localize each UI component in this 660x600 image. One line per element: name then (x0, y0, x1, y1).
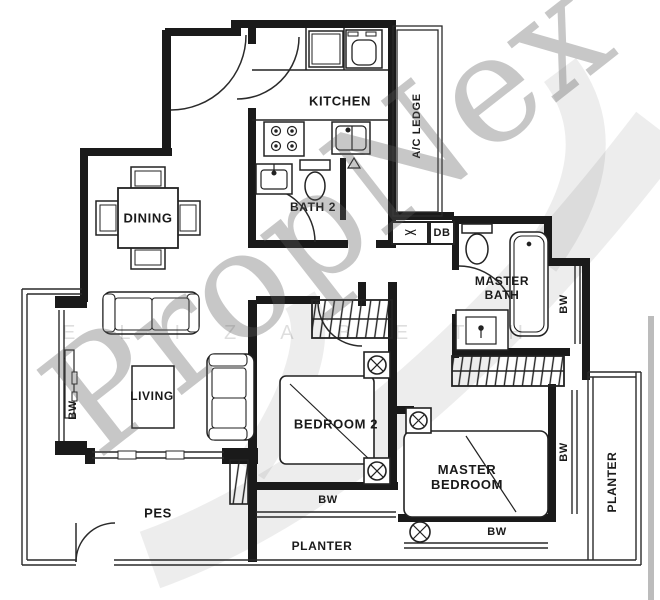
bw-label-master-right: BW (558, 442, 570, 462)
room-label-pes: PES (144, 506, 172, 521)
stove-hob (264, 122, 304, 156)
bw-label-master-bottom: BW (487, 526, 507, 538)
bath2-toilet (300, 160, 330, 200)
room-label-living: LIVING (130, 389, 174, 403)
bw-label-master-bath: BW (558, 294, 570, 314)
aircon-symbol-bedroom2-top (364, 352, 390, 378)
planter-label-right: PLANTER (605, 452, 619, 513)
kitchen-door-arc (237, 37, 299, 99)
bath2-basin (256, 164, 292, 194)
room-label-master-bedroom: MASTER BEDROOM (421, 463, 513, 493)
scan-artifact-bar (648, 316, 654, 600)
db-label: DB (433, 227, 450, 239)
room-label-ac-ledge: A/C LEDGE (411, 93, 423, 158)
fridge (309, 31, 343, 67)
planter-label-bottom: PLANTER (292, 539, 353, 553)
aircon-symbol-bedroom2-bottom (364, 458, 390, 484)
sofa-top (103, 292, 199, 334)
aircon-symbol-master (406, 408, 431, 433)
bowtie-symbol: >< (405, 227, 416, 239)
floor-plan: ELIZABETH KITCHEN DINING BATH 2 A/C LEDG… (0, 0, 660, 600)
washing-machine (346, 30, 382, 68)
living-furniture (65, 292, 254, 440)
room-label-bedroom2: BEDROOM 2 (294, 417, 378, 432)
kitchen-sink (332, 122, 370, 154)
bath2-fixtures (256, 160, 330, 200)
floor-trap-symbol (410, 522, 430, 542)
bw-label-bedroom2: BW (318, 494, 338, 506)
room-label-master-bath: MASTER BATH (470, 275, 534, 303)
room-label-kitchen: KITCHEN (309, 94, 371, 109)
master-toilet (462, 224, 492, 264)
sofa-side (207, 354, 254, 440)
pes-ac-box (230, 460, 248, 504)
master-basin (456, 310, 508, 350)
shower-point (348, 158, 360, 168)
bw-label-living: BW (67, 400, 79, 420)
room-label-dining: DINING (123, 211, 172, 226)
pes-gate-arc (76, 523, 115, 562)
main-entrance-door-arc (171, 35, 246, 110)
room-label-bath2: BATH 2 (290, 200, 336, 214)
